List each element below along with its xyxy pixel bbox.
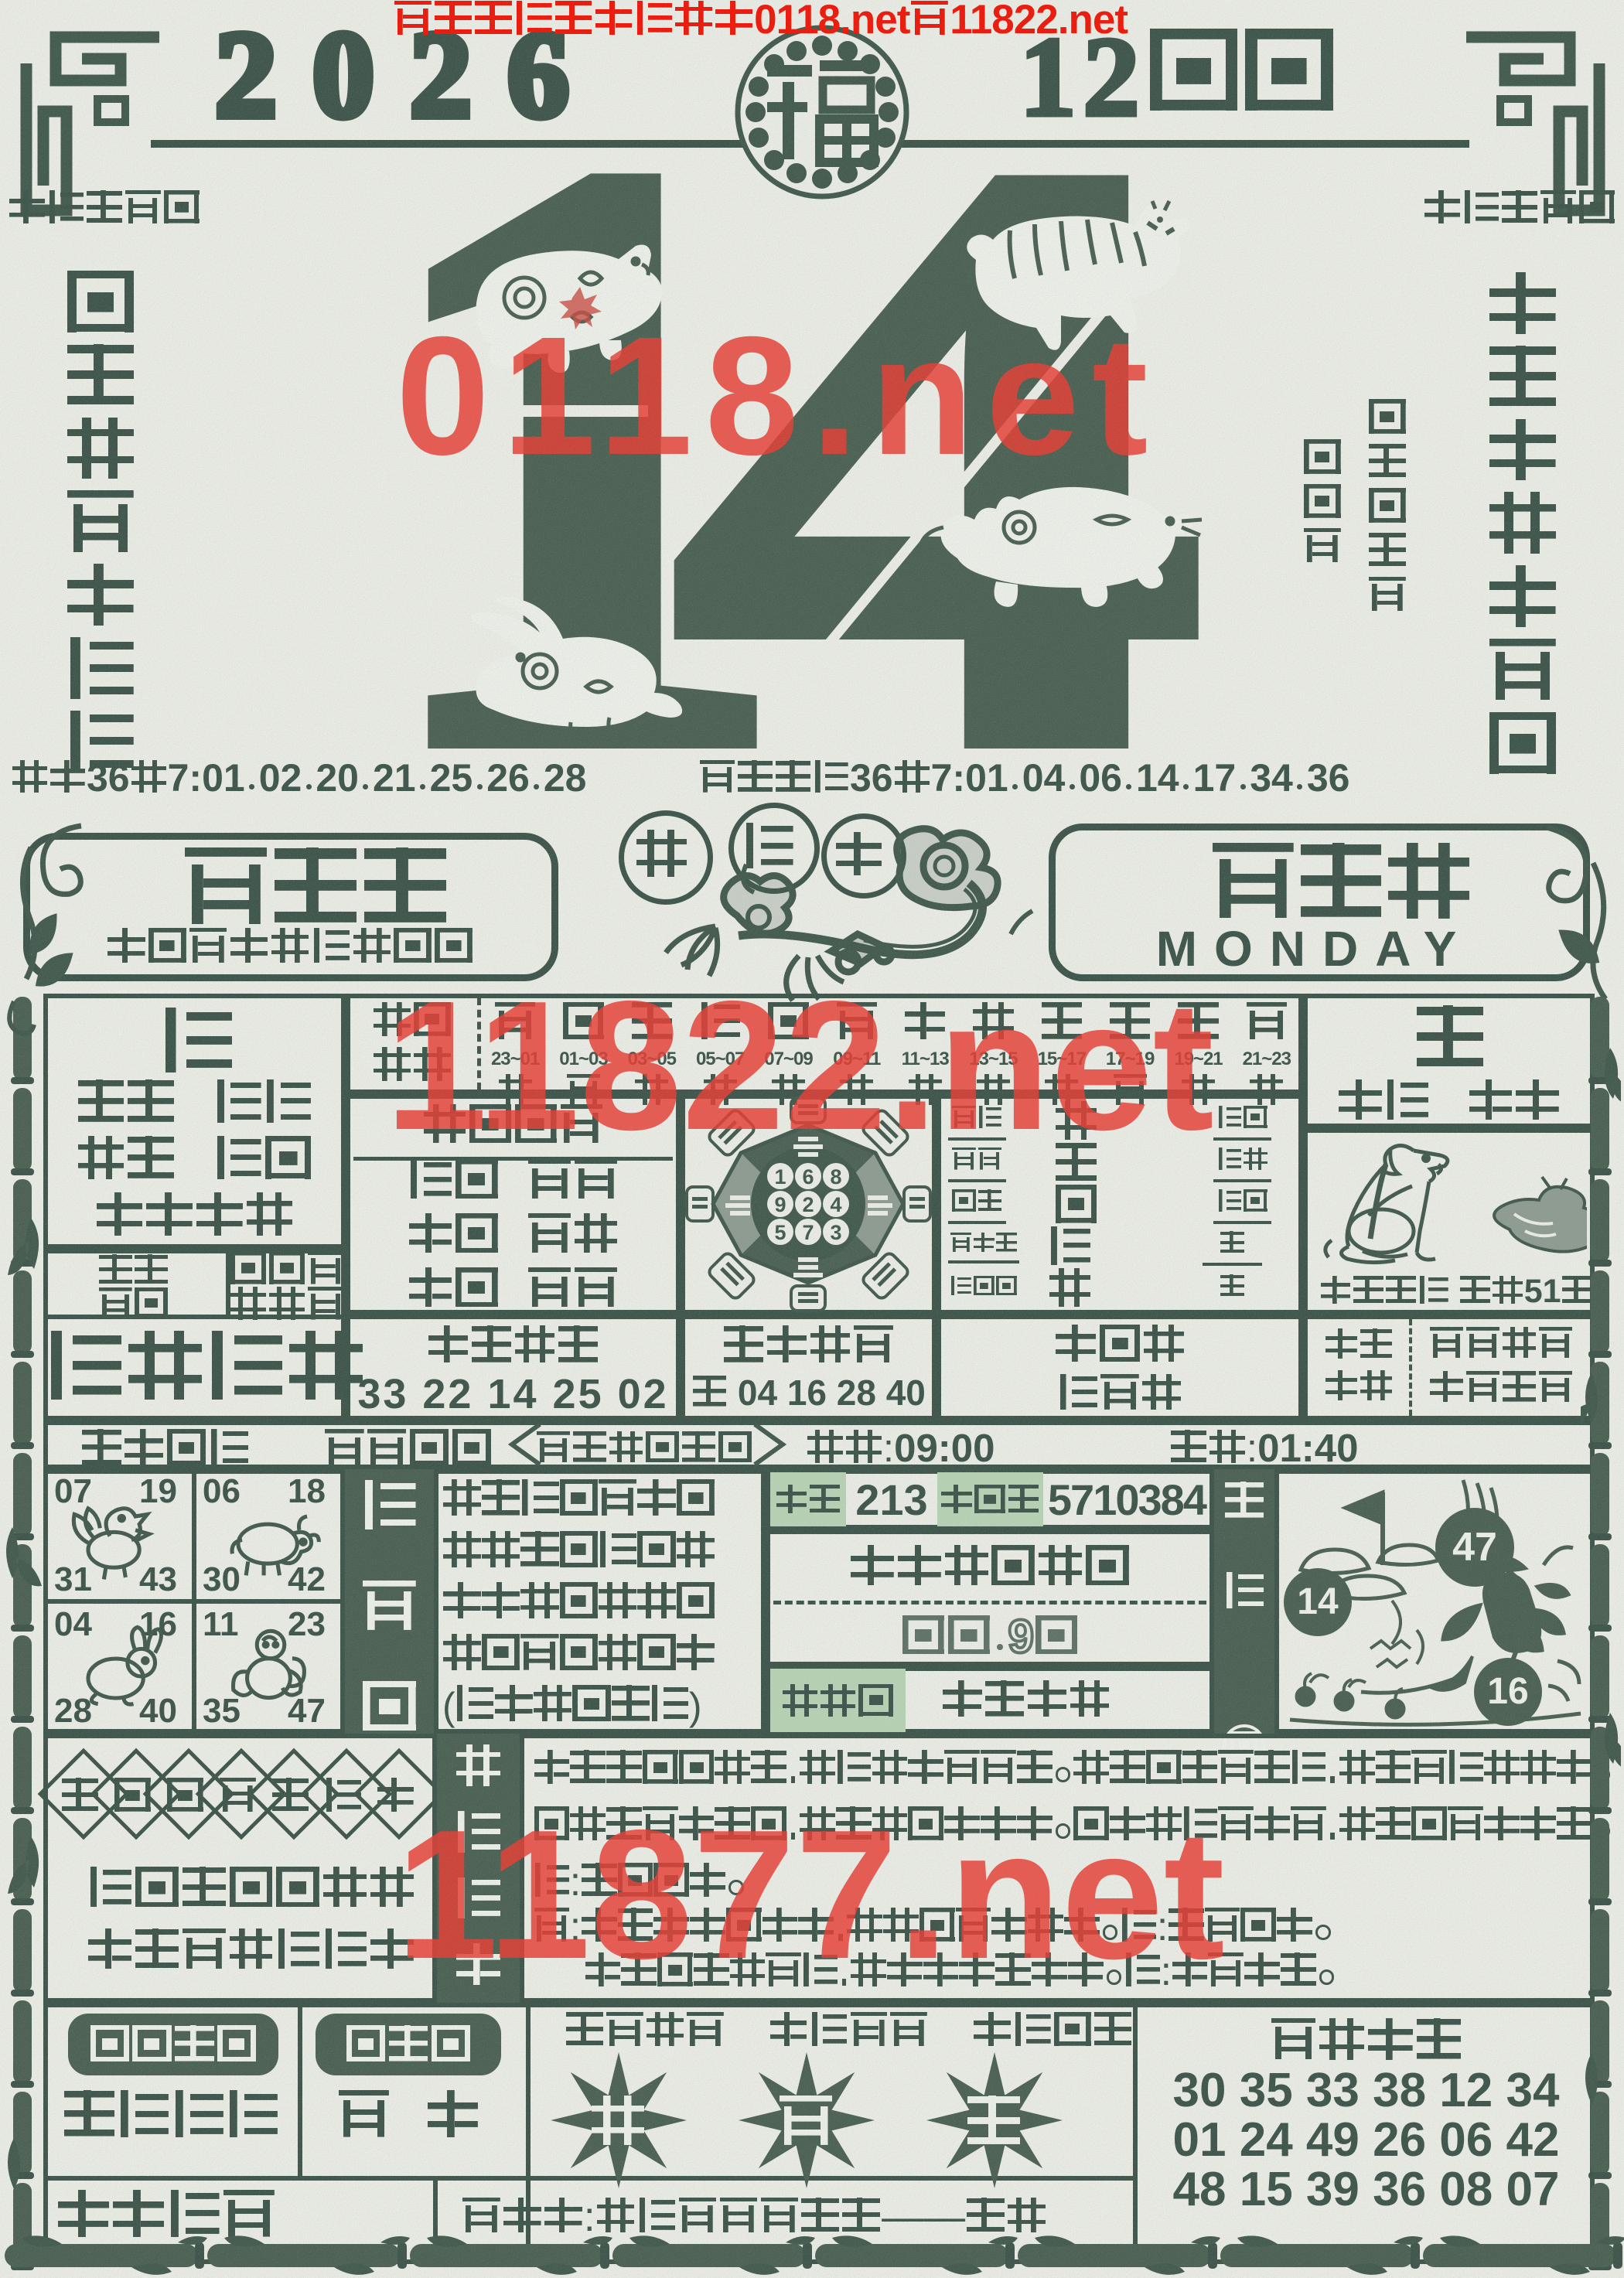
- svg-text:5: 5: [774, 1221, 786, 1244]
- svg-text:9: 9: [774, 1193, 786, 1216]
- svg-text:4: 4: [830, 1193, 841, 1216]
- svg-text:2: 2: [802, 1193, 814, 1216]
- svg-text:7: 7: [802, 1221, 814, 1244]
- svg-text:3: 3: [830, 1221, 841, 1244]
